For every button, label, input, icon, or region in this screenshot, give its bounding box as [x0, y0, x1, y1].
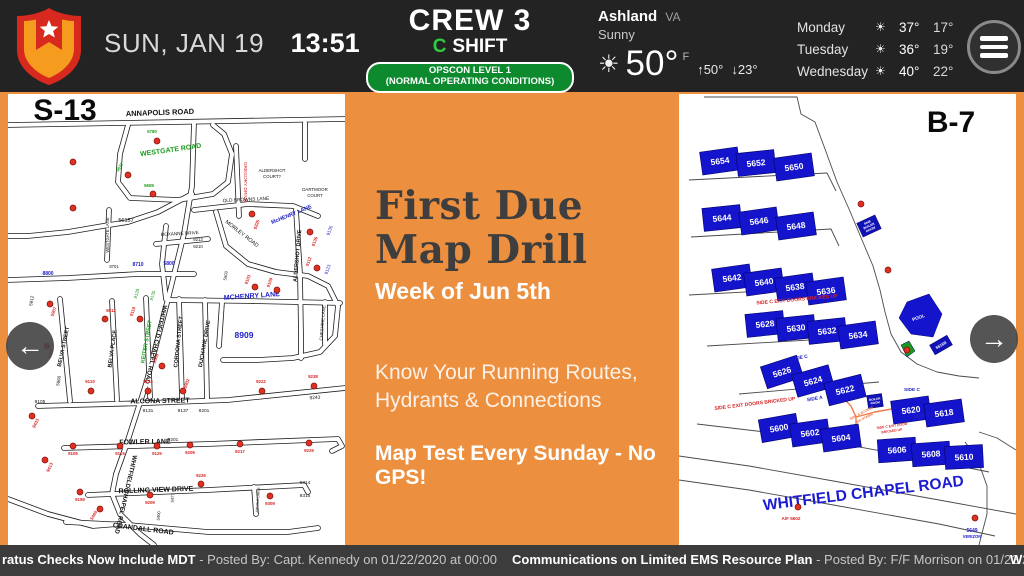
department-logo-shield-icon: [12, 6, 86, 86]
weather-city: Ashland: [598, 8, 657, 25]
hydrant-label: 9119: [129, 306, 137, 317]
svg-text:5608: 5608: [921, 448, 941, 459]
hydrant-dot: [77, 489, 83, 495]
svg-text:5477: 5477: [170, 492, 176, 502]
hydrant-dot: [307, 229, 313, 235]
hydrant-label: 9199: [75, 497, 85, 502]
building-5604: 5604: [821, 424, 862, 452]
menu-bar-icon: [980, 53, 1008, 58]
svg-text:8800: 8800: [42, 271, 53, 277]
svg-text:GREGORY DRIVE: GREGORY DRIVE: [242, 162, 248, 202]
hydrant-dot: [147, 492, 153, 498]
sign-5616b: 5616B: [930, 335, 953, 355]
forecast-low: 17°: [933, 20, 963, 35]
svg-text:9137: 9137: [178, 408, 189, 414]
hydrant-dot: [29, 413, 35, 419]
hydrant-label: 9209: [145, 500, 155, 505]
announcement-title: First Due Map Drill: [375, 184, 669, 272]
map-s13: S-13ANNAPOLIS ROADWESTGATE ROADGREGORY D…: [8, 94, 345, 545]
svg-text:5606: 5606: [887, 444, 907, 455]
hydrant-label: 9226: [196, 473, 206, 478]
hydrant-dot: [70, 443, 76, 449]
menu-button[interactable]: [967, 20, 1021, 74]
hydrant-label: 9217: [235, 449, 245, 454]
hydrant-dot: [150, 191, 156, 197]
hydrant-dot: [42, 457, 48, 463]
svg-text:9135: 9135: [149, 290, 157, 301]
svg-text:8701: 8701: [109, 264, 119, 269]
hydrant-label: 9124: [143, 379, 153, 384]
svg-text:9201: 9201: [168, 437, 179, 443]
forecast-day: Tuesday: [797, 42, 875, 57]
svg-text:5628: 5628: [755, 318, 775, 330]
map-card-b7: 5654565256505644564656485642564056385636…: [679, 94, 1016, 545]
hydrant-dot: [97, 506, 103, 512]
svg-text:5800: 5800: [163, 261, 174, 267]
svg-text:9315: 9315: [300, 493, 311, 499]
hydrant-label: 9110: [85, 379, 95, 384]
forecast-high: 37°: [899, 20, 933, 35]
hydrant-label: 9229: [304, 448, 314, 453]
dashboard: SUN, JAN 19 13:51 CREW 3 CSHIFT OPSCON L…: [0, 0, 1024, 576]
hydrant-label: 5677: [115, 161, 125, 172]
menu-bar-icon: [980, 45, 1008, 50]
sun-icon: ☀: [875, 42, 899, 56]
svg-text:5912: 5912: [28, 295, 35, 306]
hydrant-dot: [102, 316, 108, 322]
svg-text:A/F 5602: A/F 5602: [782, 516, 801, 521]
hydrant-dot: [70, 159, 76, 165]
hydrant-dot: [145, 388, 151, 394]
forecast-high: 36°: [899, 42, 933, 57]
hydrant-label: 9309: [265, 501, 275, 506]
svg-text:5400: 5400: [156, 510, 162, 520]
building-5648: 5648: [776, 212, 817, 240]
arrow-left-icon: ←: [16, 330, 44, 362]
forecast-row: Monday☀37°17°: [797, 16, 965, 38]
hydrant-dot: [159, 363, 165, 369]
hydrant-dot: [237, 441, 243, 447]
weather-widget: Ashland VA Sunny ☀ 50° F ↑50° ↓23°: [598, 8, 778, 84]
hydrant-dot: [154, 138, 160, 144]
building-5650: 5650: [774, 153, 815, 181]
svg-text:9123: 9123: [324, 263, 332, 275]
svg-text:5644: 5644: [712, 212, 732, 224]
hydrant-dot: [88, 388, 94, 394]
svg-text:SIDE A: SIDE A: [807, 395, 824, 404]
hydrant-label: 9209: [185, 450, 195, 455]
forecast-low: 19°: [933, 42, 963, 57]
hydrant-dot: [858, 201, 864, 207]
forecast-row: Wednesday☀40°22°: [797, 60, 965, 82]
weather-high: ↑50°: [697, 62, 723, 77]
building-5646: 5646: [739, 207, 780, 235]
svg-text:ANNAPOLIS ROAD: ANNAPOLIS ROAD: [126, 107, 195, 118]
hydrant-label: 9103: [244, 274, 252, 285]
announcement-subtitle: Week of Jun 5th: [375, 278, 669, 305]
building-5634: 5634: [838, 321, 879, 349]
weather-state: VA: [665, 10, 680, 24]
svg-text:5860: 5860: [55, 375, 62, 386]
announcement-emphasis: Map Test Every Sunday - No GPS!: [375, 442, 669, 490]
datetime: SUN, JAN 19 13:51: [104, 28, 360, 59]
arrow-right-icon: →: [980, 323, 1008, 355]
weather-temp: 50°: [626, 44, 679, 84]
forecast-day: Wednesday: [797, 64, 875, 79]
building-5644: 5644: [702, 205, 742, 232]
svg-text:9314: 9314: [300, 480, 311, 486]
building-5618: 5618: [924, 399, 965, 427]
sign-5648-boiler-room: 5648BOILERROOM: [857, 215, 881, 237]
svg-text:9131: 9131: [143, 408, 154, 414]
hydrant-dot: [117, 443, 123, 449]
hydrant-dot: [198, 481, 204, 487]
hydrant-label: 9222: [256, 379, 266, 384]
svg-text:9213: 9213: [193, 237, 203, 242]
shift-letter: C: [433, 36, 447, 57]
hydrant-label: 9109: [266, 277, 274, 288]
svg-text:9128: 9128: [133, 288, 141, 299]
svg-text:DUCHAINE DRIVE: DUCHAINE DRIVE: [198, 320, 212, 368]
opscon-desc: (NORMAL OPERATING CONDITIONS): [372, 77, 568, 88]
announcement-body: Know Your Running Routes, Hydrants & Con…: [375, 359, 669, 416]
weather-condition: Sunny: [598, 27, 778, 42]
hydrant-label: 9105: [68, 451, 78, 456]
svg-text:9243: 9243: [309, 395, 320, 402]
news-ticker: ratus Checks Now Include MDT - Posted By…: [0, 545, 1024, 576]
ticker-item: Communications on Limited EMS Resource P…: [512, 552, 1024, 567]
hydrant-label: 5780: [147, 129, 157, 134]
forecast-high: 40°: [899, 64, 933, 79]
hydrant-dot: [137, 316, 143, 322]
hydrant-dot: [125, 172, 131, 178]
map-card-s13: S-13ANNAPOLIS ROADWESTGATE ROADGREGORY D…: [8, 94, 345, 545]
svg-text:5632: 5632: [817, 325, 837, 337]
svg-text:WHITFIELD CHAPEL ROAD: WHITFIELD CHAPEL ROAD: [762, 473, 965, 515]
current-time: 13:51: [291, 28, 360, 58]
svg-text:8710: 8710: [132, 262, 143, 268]
weather-temp-row: ☀ 50° F ↑50° ↓23°: [598, 44, 778, 84]
svg-text:9135: 9135: [326, 224, 334, 236]
svg-text:5610: 5610: [954, 451, 974, 462]
previous-slide-button[interactable]: ←: [6, 322, 54, 370]
hydrant-dot: [885, 267, 891, 273]
building-5610: 5610: [944, 445, 983, 470]
svg-text:ALCONA STREET: ALCONA STREET: [130, 397, 190, 405]
svg-text:9105: 9105: [35, 399, 46, 405]
shift-word: SHIFT: [452, 36, 507, 57]
svg-text:5630: 5630: [786, 322, 806, 334]
hydrant-label: 9112: [305, 256, 313, 267]
menu-bar-icon: [980, 36, 1008, 41]
svg-text:8909: 8909: [235, 330, 254, 340]
svg-text:9201: 9201: [199, 408, 210, 414]
svg-text:WESTGATE LANE: WESTGATE LANE: [105, 217, 110, 252]
hydrant-label: 5460: [89, 509, 98, 520]
hydrant-dot: [795, 504, 801, 510]
svg-text:ROXANNE DRIVE: ROXANNE DRIVE: [161, 230, 199, 237]
hydrant-label: 9238: [308, 374, 318, 379]
hydrant-label: 9413: [45, 461, 54, 472]
svg-text:DARTMOOR: DARTMOOR: [302, 187, 328, 192]
svg-text:9210: 9210: [193, 244, 203, 249]
building-5654: 5654: [700, 147, 741, 175]
hydrant-dot: [267, 493, 273, 499]
main-area: S-13ANNAPOLIS ROADWESTGATE ROADGREGORY D…: [0, 92, 1024, 545]
hydrant-label: 9125: [152, 451, 162, 456]
svg-text:5652: 5652: [746, 157, 766, 169]
next-slide-button[interactable]: →: [970, 315, 1018, 363]
hydrant-label: 9115: [115, 451, 125, 456]
hydrant-label: 9136: [311, 236, 319, 247]
ticker-item: ratus Checks Now Include MDT - Posted By…: [2, 552, 497, 567]
hydrant-label: 5512: [106, 308, 116, 313]
forecast-list: Monday☀37°17°Tuesday☀36°19°Wednesday☀40°…: [797, 16, 965, 82]
building-5652: 5652: [736, 150, 776, 177]
shift-line: CSHIFT: [352, 36, 588, 58]
current-date: SUN, JAN 19: [104, 28, 264, 58]
hydrant-dot: [972, 515, 978, 521]
opscon-status-badge: OPSCON LEVEL 1 (NORMAL OPERATING CONDITI…: [366, 62, 574, 93]
svg-text:COURT?: COURT?: [263, 174, 282, 179]
building-5606: 5606: [877, 437, 917, 463]
svg-text:COURT: COURT: [307, 193, 323, 198]
svg-text:56157: 56157: [118, 218, 133, 224]
weather-low: ↓23°: [731, 62, 757, 77]
svg-text:SIDE C: SIDE C: [791, 354, 808, 363]
hydrant-dot: [259, 388, 265, 394]
hydrant-dot: [249, 211, 255, 217]
svg-text:5603: 5603: [222, 270, 229, 281]
hydrant-label: 5609: [144, 183, 154, 188]
svg-text:VERIZON: VERIZON: [963, 534, 982, 539]
forecast-low: 22°: [933, 64, 963, 79]
forecast-row: Tuesday☀36°19°: [797, 38, 965, 60]
hydrant-dot: [154, 443, 160, 449]
hydrant-label: 9225: [253, 219, 261, 230]
svg-text:B-7: B-7: [927, 106, 975, 139]
svg-text:S-13: S-13: [33, 94, 96, 127]
svg-text:SIDE C EXIT DOORS BRICKED UP: SIDE C EXIT DOORS BRICKED UP: [714, 396, 796, 412]
forecast-day: Monday: [797, 20, 875, 35]
crew-block: CREW 3 CSHIFT OPSCON LEVEL 1 (NORMAL OPE…: [352, 4, 588, 93]
ticker-item: W: [1010, 552, 1022, 567]
svg-text:FOWLER LANE: FOWLER LANE: [119, 439, 171, 447]
top-bar: SUN, JAN 19 13:51 CREW 3 CSHIFT OPSCON L…: [0, 0, 1024, 92]
sun-icon: ☀: [875, 20, 899, 34]
weather-unit: F: [682, 51, 689, 63]
sun-icon: ☀: [875, 64, 899, 78]
hydrant-dot: [187, 442, 193, 448]
sun-icon: ☀: [598, 50, 620, 79]
hydrant-dot: [904, 347, 910, 353]
svg-text:ALDERSHOT: ALDERSHOT: [259, 168, 286, 173]
weather-location: Ashland VA: [598, 8, 778, 25]
hydrant-dot: [274, 287, 280, 293]
announcement-panel: First Due Map Drill Week of Jun 5th Know…: [345, 94, 679, 545]
map-b7: 5654565256505644564656485642564056385636…: [679, 94, 1016, 545]
crew-title: CREW 3: [352, 4, 588, 38]
hydrant-dot: [306, 440, 312, 446]
svg-text:SIDE C: SIDE C: [904, 387, 921, 393]
hydrant-dot: [314, 265, 320, 271]
hydrant-dot: [252, 284, 258, 290]
hydrant-dot: [70, 205, 76, 211]
hydrant-dot: [311, 383, 317, 389]
